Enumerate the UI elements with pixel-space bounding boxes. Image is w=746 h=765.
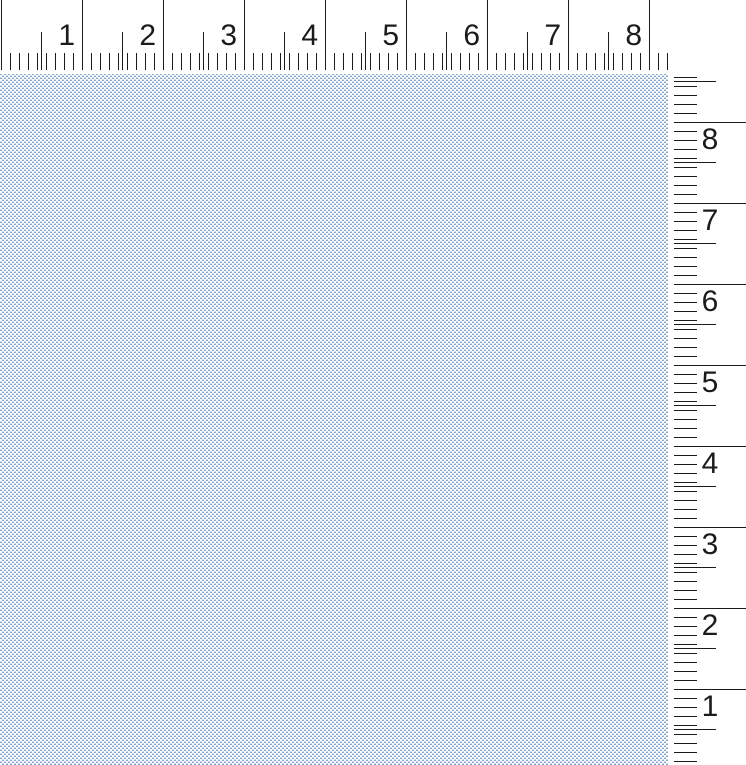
h-ruler-label-7: 7 (521, 21, 561, 51)
h-ruler-label-6: 6 (440, 21, 480, 51)
horizontal-ruler-fine-ticks (1, 53, 668, 70)
v-ruler-label-2: 2 (694, 611, 726, 641)
h-ruler-label-1: 1 (35, 21, 75, 51)
vertical-ruler[interactable]: 8 7 6 5 4 3 2 1 (674, 74, 746, 765)
v-ruler-label-4: 4 (694, 449, 726, 479)
h-ruler-label-4: 4 (278, 21, 318, 51)
horizontal-ruler[interactable]: 1 2 3 4 5 6 7 8 (0, 0, 668, 70)
h-ruler-label-2: 2 (116, 21, 156, 51)
document-canvas[interactable] (0, 74, 668, 765)
h-ruler-label-3: 3 (197, 21, 237, 51)
h-ruler-label-8: 8 (602, 21, 642, 51)
v-ruler-label-1: 1 (694, 692, 726, 722)
v-ruler-label-8: 8 (694, 125, 726, 155)
h-ruler-label-5: 5 (359, 21, 399, 51)
v-ruler-label-7: 7 (694, 206, 726, 236)
v-ruler-label-3: 3 (694, 530, 726, 560)
v-ruler-label-5: 5 (694, 368, 726, 398)
v-ruler-label-6: 6 (694, 287, 726, 317)
app-window: 1 2 3 4 5 6 7 8 8 7 6 5 4 3 2 1 (0, 0, 746, 765)
